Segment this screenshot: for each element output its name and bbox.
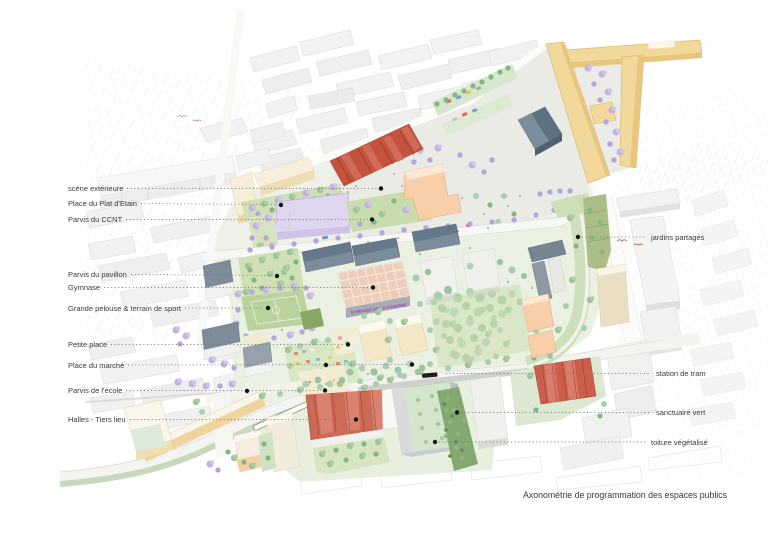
svg-text:Place du Plat d'Etain: Place du Plat d'Etain <box>68 199 137 208</box>
svg-text:toiture végétalisé: toiture végétalisé <box>651 438 708 447</box>
svg-text:Petite place: Petite place <box>68 340 107 349</box>
svg-text:sanctuaire vert: sanctuaire vert <box>656 408 706 417</box>
svg-text:Halles - Tiers lieu: Halles - Tiers lieu <box>68 415 126 424</box>
svg-text:Place du marché: Place du marché <box>68 361 124 370</box>
svg-text:Parvis du pavillon: Parvis du pavillon <box>68 270 127 279</box>
svg-text:Grande pelouse & terrain de sp: Grande pelouse & terrain de sport <box>68 304 182 313</box>
svg-text:Parvis de l'école: Parvis de l'école <box>68 386 122 395</box>
svg-text:Axonométrie de programmation d: Axonométrie de programmation des espaces… <box>523 490 728 500</box>
svg-text:station de tram: station de tram <box>656 369 706 378</box>
svg-text:scène extérieure: scène extérieure <box>68 184 123 193</box>
svg-text:jardins partagés: jardins partagés <box>650 233 705 242</box>
svg-text:Gymnase: Gymnase <box>68 283 100 292</box>
svg-text:Parvis du CCNT: Parvis du CCNT <box>68 215 123 224</box>
